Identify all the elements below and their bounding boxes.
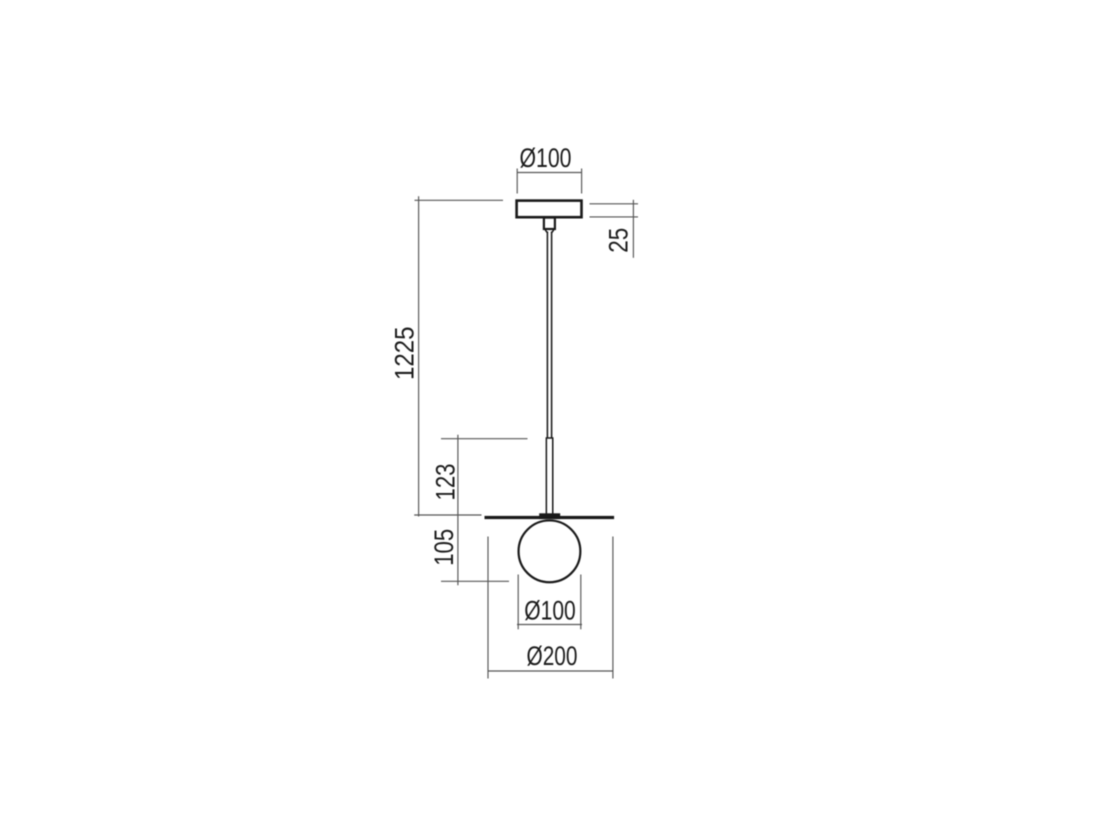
svg-text:105: 105 xyxy=(429,529,459,566)
svg-text:1225: 1225 xyxy=(389,327,419,381)
svg-text:Ø200: Ø200 xyxy=(527,641,578,671)
svg-text:Ø100: Ø100 xyxy=(520,143,572,173)
svg-text:123: 123 xyxy=(431,464,461,501)
svg-text:Ø100: Ø100 xyxy=(524,596,576,626)
svg-text:25: 25 xyxy=(604,228,634,253)
